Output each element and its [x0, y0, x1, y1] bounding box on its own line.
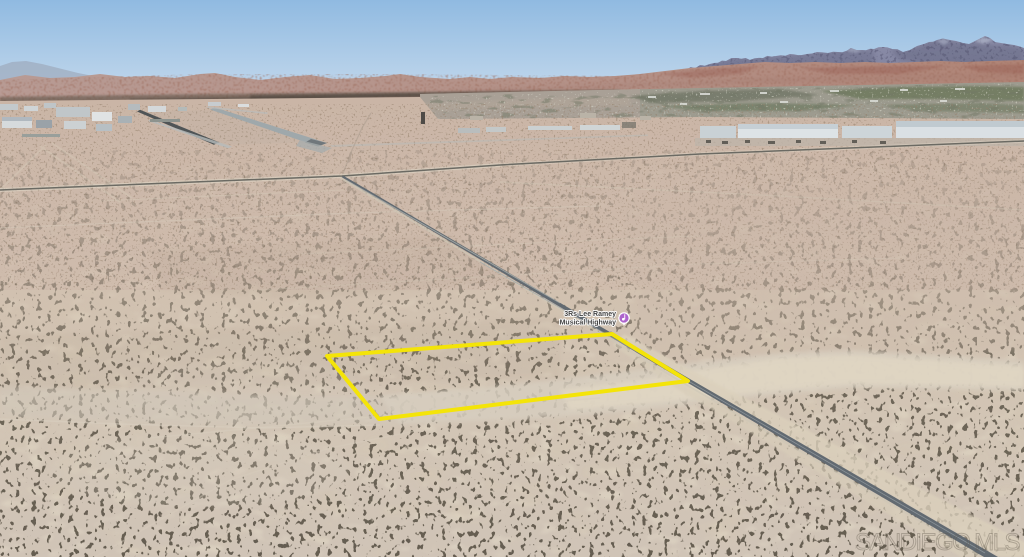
- svg-text:Musical Highway: Musical Highway: [560, 320, 617, 327]
- svg-text:3Rs Lee Ramey: 3Rs Lee Ramey: [564, 311, 616, 318]
- svg-text:SANDIEGO MLS: SANDIEGO MLS: [855, 529, 1021, 556]
